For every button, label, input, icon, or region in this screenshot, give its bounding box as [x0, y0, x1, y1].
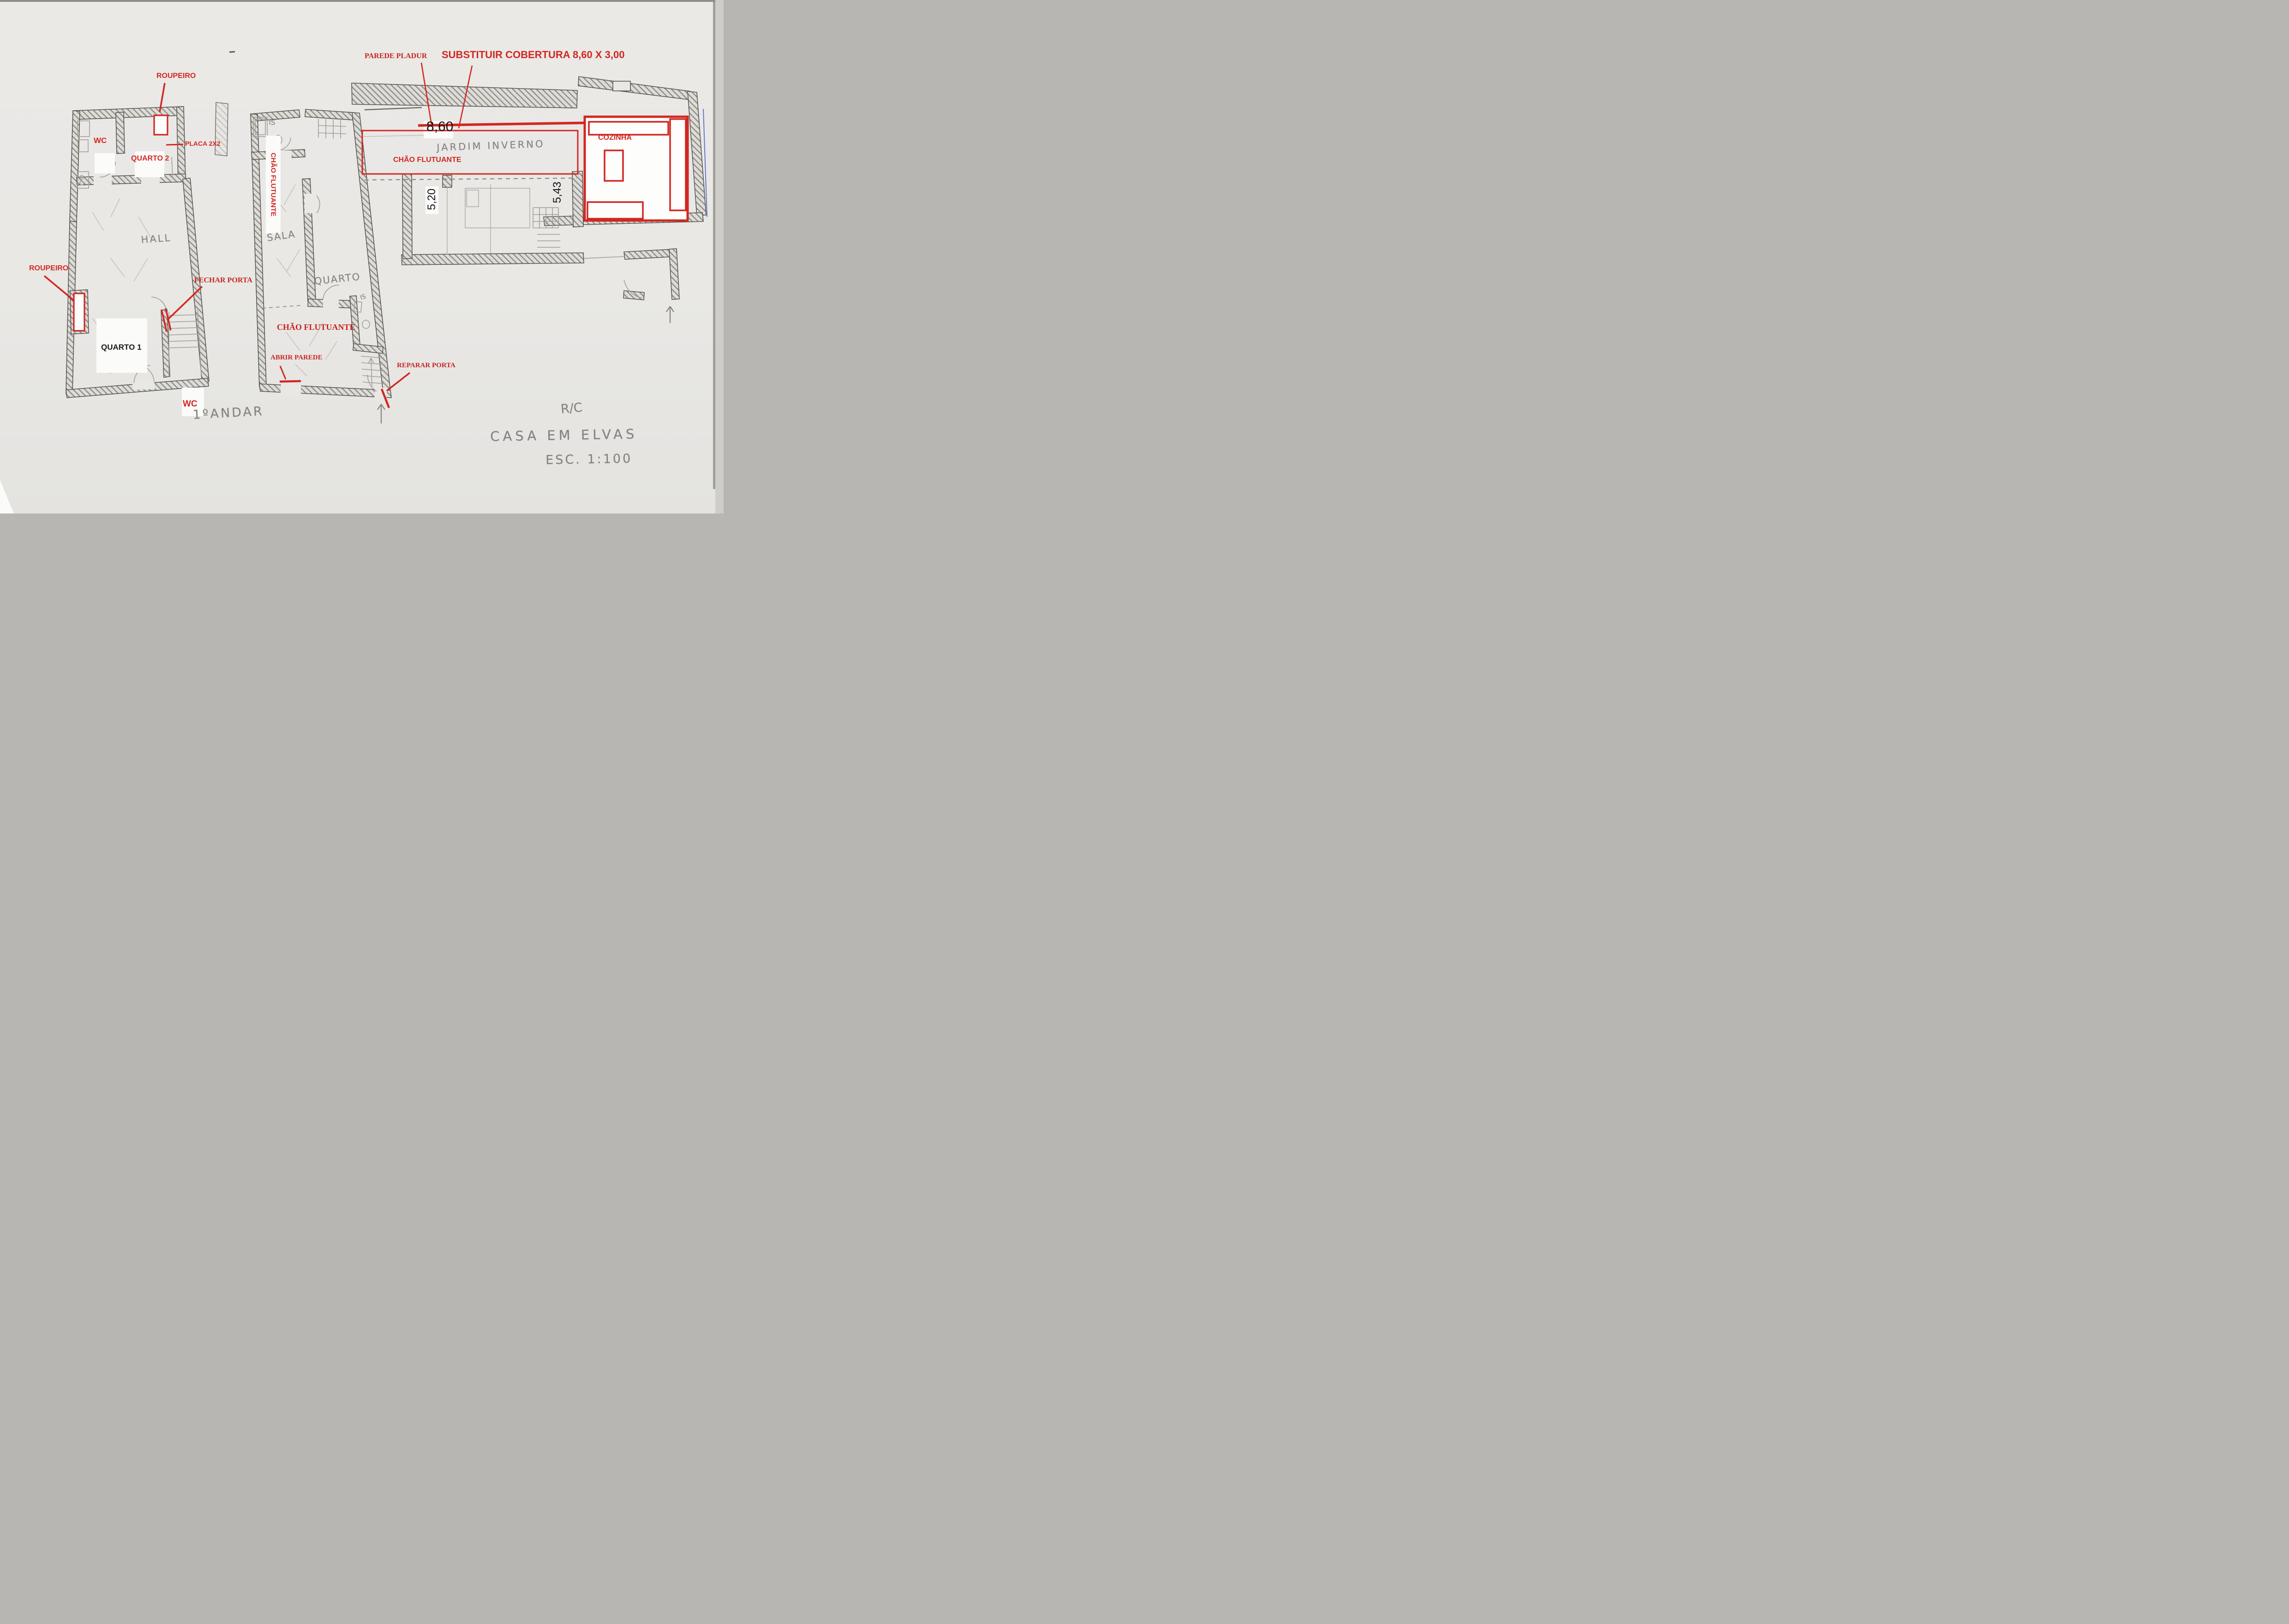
dimension-5-20: 5,20 — [426, 189, 437, 210]
abrir-parede-label: ABRIR PAREDE — [270, 354, 323, 361]
is-top-label: IS — [269, 119, 276, 126]
reparar-porta-pointer — [387, 373, 410, 391]
roupeiro-left-label: ROUPEIRO — [29, 265, 68, 272]
chao-flutuante-bottom-label: CHÃO FLUTUANTE — [277, 323, 355, 331]
cozinha-counters — [585, 117, 688, 221]
dimension-5-43: 5,43 — [552, 182, 563, 203]
quarto1-label: QUARTO 1 — [101, 343, 142, 351]
wc-top-label: WC — [94, 137, 107, 144]
placa-pointer — [166, 144, 183, 145]
scale-label: ESC. 1:100 — [545, 453, 632, 466]
project-title: CASA EM ELVAS — [490, 427, 638, 443]
fechar-porta-label: FECHAR PORTA — [194, 277, 252, 284]
roupeiro-top-label: ROUPEIRO — [156, 72, 196, 80]
scanned-floor-plan-sheet: PAREDE PLADUR SUBSTITUIR COBERTURA 8,60 … — [0, 0, 724, 513]
abrir-parede-mark — [280, 381, 301, 382]
dimension-8-60: 8,60 — [426, 120, 453, 134]
roupeiro-left-box — [74, 293, 84, 331]
cozinha-label: COZINHA — [598, 134, 632, 142]
abrir-parede-pointer — [280, 366, 286, 379]
quarto2-label: QUARTO 2 — [131, 155, 169, 162]
wc-bottom-label: WC — [183, 400, 198, 408]
hall-label: HALL — [141, 233, 172, 245]
chao-flutuante-jardim-label: CHÃO FLUTUANTE — [393, 156, 461, 164]
chao-flutuante-sala-label: CHÃO FLUTUANTE — [270, 153, 277, 216]
rc-title: R/C — [560, 401, 583, 416]
floor1-title: 1ºANDAR — [192, 405, 264, 421]
reparar-porta-label: REPARAR PORTA — [397, 362, 455, 369]
roupeiro-top-box — [154, 115, 168, 135]
substituir-cobertura-label: SUBSTITUIR COBERTURA 8,60 X 3,00 — [442, 50, 625, 60]
parede-pladur-label: PAREDE PLADUR — [365, 53, 427, 60]
placa-2x2-label: PLACA 2X2 — [185, 140, 221, 147]
cobertura-outline — [362, 131, 578, 174]
